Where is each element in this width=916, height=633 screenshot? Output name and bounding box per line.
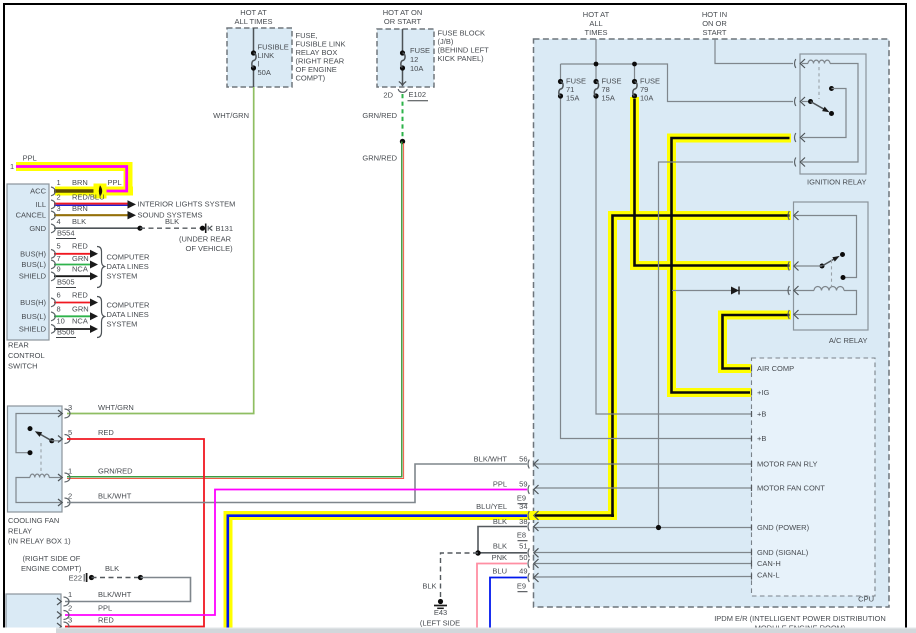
svg-text:BUS(H): BUS(H) [20, 249, 46, 258]
svg-text:1: 1 [68, 590, 72, 599]
svg-text:SYSTEM: SYSTEM [107, 272, 138, 281]
svg-text:ACC: ACC [30, 187, 46, 196]
svg-text:OF VEHICLE): OF VEHICLE) [186, 244, 234, 253]
svg-text:GRN/RED: GRN/RED [362, 111, 397, 120]
svg-text:GRN: GRN [72, 254, 89, 263]
svg-text:BLK: BLK [493, 542, 507, 551]
svg-text:PPL: PPL [98, 604, 112, 613]
svg-text:IPDM E/R (INTELLIGENT POWER DI: IPDM E/R (INTELLIGENT POWER DISTRIBUTION [714, 614, 886, 623]
svg-text:+IG: +IG [757, 388, 769, 397]
svg-text:15A: 15A [602, 94, 615, 103]
svg-text:BLK: BLK [72, 217, 86, 226]
svg-text:OR START: OR START [384, 17, 422, 26]
svg-text:BLK: BLK [165, 217, 179, 226]
svg-text:HOT AT: HOT AT [240, 8, 267, 17]
svg-text:E102: E102 [409, 90, 427, 99]
svg-text:1: 1 [68, 467, 72, 476]
svg-text:RED: RED [72, 242, 88, 251]
svg-text:2: 2 [68, 604, 72, 613]
svg-text:+B: +B [757, 434, 766, 443]
svg-text:GRN: GRN [72, 305, 89, 314]
svg-text:RED/BLU: RED/BLU [72, 193, 105, 202]
svg-text:10A: 10A [410, 64, 423, 73]
svg-text:HOT AT ON: HOT AT ON [383, 8, 423, 17]
svg-text:7: 7 [57, 254, 61, 263]
svg-text:1: 1 [10, 162, 14, 171]
svg-text:15A: 15A [566, 94, 579, 103]
svg-text:10A: 10A [640, 94, 653, 103]
svg-text:BRN: BRN [72, 204, 88, 213]
svg-text:E9: E9 [517, 582, 526, 591]
svg-text:3: 3 [57, 204, 61, 213]
svg-text:ON OR: ON OR [702, 19, 727, 28]
svg-text:CANCEL: CANCEL [16, 211, 46, 220]
svg-text:(LEFT SIDE: (LEFT SIDE [420, 619, 460, 628]
svg-text:50A: 50A [258, 68, 271, 77]
svg-text:PNK: PNK [492, 553, 507, 562]
svg-text:GND: GND [29, 224, 46, 233]
svg-text:3: 3 [68, 403, 72, 412]
svg-text:5: 5 [57, 242, 61, 251]
svg-text:RED: RED [98, 616, 114, 625]
svg-text:START: START [703, 28, 727, 37]
svg-text:2: 2 [68, 492, 72, 501]
svg-text:50: 50 [519, 553, 527, 562]
svg-text:59: 59 [519, 480, 527, 489]
svg-text:ALL: ALL [589, 19, 602, 28]
svg-text:BUS(L): BUS(L) [21, 312, 46, 321]
svg-text:56: 56 [519, 455, 527, 464]
svg-text:SYSTEM: SYSTEM [107, 320, 138, 329]
svg-text:TIMES: TIMES [585, 28, 608, 37]
svg-text:34: 34 [519, 502, 527, 511]
svg-text:SWITCH: SWITCH [8, 362, 38, 371]
svg-text:COMPT): COMPT) [296, 74, 326, 83]
svg-text:AIR COMP: AIR COMP [757, 364, 794, 373]
svg-text:RED: RED [98, 428, 114, 437]
svg-text:49: 49 [519, 567, 527, 576]
svg-text:FUSE: FUSE [410, 46, 430, 55]
svg-text:9: 9 [57, 265, 61, 274]
svg-text:E43: E43 [434, 608, 447, 617]
svg-text:MOTOR FAN RLY: MOTOR FAN RLY [757, 460, 818, 469]
svg-text:DATA LINES: DATA LINES [107, 262, 149, 271]
svg-text:RED: RED [72, 291, 88, 300]
svg-text:B554: B554 [57, 229, 75, 238]
svg-text:KICK PANEL): KICK PANEL) [438, 54, 485, 63]
svg-text:38: 38 [519, 517, 527, 526]
svg-text:(RIGHT SIDE OF: (RIGHT SIDE OF [23, 554, 81, 563]
svg-text:BLK/WHT: BLK/WHT [98, 492, 132, 501]
svg-text:NCA: NCA [72, 265, 88, 274]
svg-text:+B: +B [757, 410, 766, 419]
svg-text:SHIELD: SHIELD [19, 272, 47, 281]
svg-text:NCA: NCA [72, 317, 88, 326]
svg-text:3: 3 [68, 616, 72, 625]
svg-text:COOLING FAN: COOLING FAN [8, 516, 59, 525]
svg-text:5: 5 [68, 428, 72, 437]
svg-text:PPL: PPL [23, 154, 37, 163]
svg-text:PPL: PPL [493, 480, 507, 489]
svg-text:BLK: BLK [493, 517, 507, 526]
svg-text:10: 10 [57, 317, 65, 326]
svg-text:6: 6 [57, 291, 61, 300]
svg-text:BLU: BLU [492, 567, 507, 576]
svg-text:WHT/GRN: WHT/GRN [98, 403, 134, 412]
svg-text:A/C RELAY: A/C RELAY [829, 336, 868, 345]
svg-text:8: 8 [57, 305, 61, 314]
svg-text:REAR: REAR [8, 341, 29, 350]
svg-text:ALL TIMES: ALL TIMES [235, 17, 273, 26]
svg-text:WHT/GRN: WHT/GRN [213, 111, 249, 120]
svg-text:(IN RELAY BOX 1): (IN RELAY BOX 1) [8, 537, 71, 546]
svg-text:BUS(H): BUS(H) [20, 298, 46, 307]
svg-text:CAN-H: CAN-H [757, 559, 781, 568]
svg-text:B506: B506 [57, 328, 75, 337]
svg-text:HOT AT: HOT AT [583, 10, 610, 19]
svg-text:B505: B505 [57, 278, 75, 287]
svg-text:GND (SIGNAL): GND (SIGNAL) [757, 548, 809, 557]
svg-text:LINK: LINK [258, 51, 275, 60]
svg-text:RELAY: RELAY [8, 527, 32, 536]
svg-text:HOT IN: HOT IN [702, 10, 727, 19]
svg-text:CAN-L: CAN-L [757, 571, 780, 580]
svg-text:COMPUTER: COMPUTER [107, 253, 151, 262]
svg-text:BRN: BRN [72, 178, 88, 187]
svg-text:SHIELD: SHIELD [19, 325, 47, 334]
svg-text:(UNDER REAR: (UNDER REAR [179, 235, 232, 244]
svg-text:PPL: PPL [108, 178, 122, 187]
svg-text:IGNITION RELAY: IGNITION RELAY [807, 178, 866, 187]
svg-text:CONTROL: CONTROL [8, 351, 45, 360]
svg-text:ENGINE COMPT): ENGINE COMPT) [21, 564, 82, 573]
svg-text:GRN/RED: GRN/RED [362, 154, 397, 163]
svg-text:MOTOR FAN CONT: MOTOR FAN CONT [757, 484, 825, 493]
svg-text:BLK: BLK [105, 564, 119, 573]
svg-text:DATA LINES: DATA LINES [107, 310, 149, 319]
svg-text:4: 4 [57, 217, 61, 226]
svg-text:E8: E8 [517, 531, 526, 540]
svg-text:BLU/YEL: BLU/YEL [476, 502, 507, 511]
svg-text:1: 1 [57, 178, 61, 187]
svg-text:B131: B131 [216, 224, 234, 233]
svg-text:ILL: ILL [36, 200, 46, 209]
svg-text:COMPUTER: COMPUTER [107, 301, 151, 310]
svg-text:BLK/WHT: BLK/WHT [98, 590, 132, 599]
svg-text:E22: E22 [69, 574, 82, 583]
svg-text:2D: 2D [383, 91, 393, 100]
svg-text:INTERIOR LIGHTS SYSTEM: INTERIOR LIGHTS SYSTEM [138, 200, 236, 209]
svg-text:BUS(L): BUS(L) [21, 260, 46, 269]
svg-text:BLK/WHT: BLK/WHT [474, 455, 508, 464]
svg-text:12: 12 [410, 55, 418, 64]
svg-text:BLK: BLK [422, 582, 436, 591]
svg-text:CPU: CPU [858, 595, 874, 604]
svg-text:GRN/RED: GRN/RED [98, 467, 133, 476]
svg-text:2: 2 [57, 193, 61, 202]
svg-text:51: 51 [519, 542, 527, 551]
svg-text:GND (POWER): GND (POWER) [757, 523, 810, 532]
